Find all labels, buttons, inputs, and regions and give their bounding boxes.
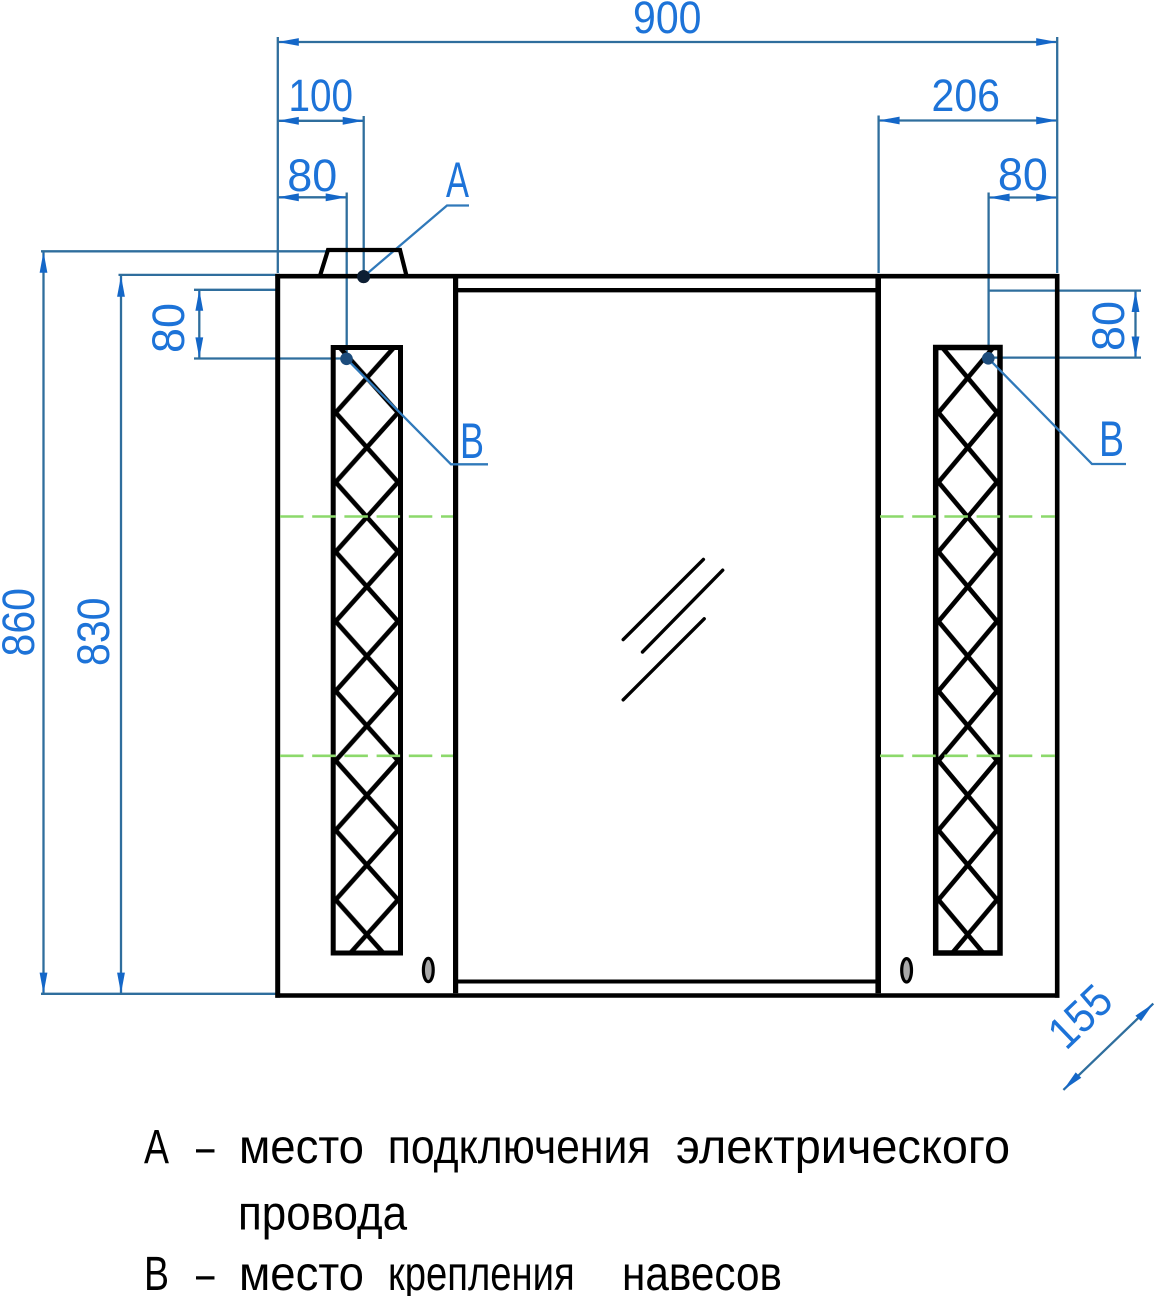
- svg-text:навесов: навесов: [622, 1248, 782, 1296]
- svg-text:80: 80: [287, 150, 337, 201]
- svg-text:В: В: [144, 1248, 169, 1296]
- svg-text:830: 830: [68, 598, 119, 667]
- svg-text:80: 80: [998, 149, 1048, 200]
- svg-text:–: –: [196, 1248, 215, 1296]
- svg-text:крепления: крепления: [388, 1248, 575, 1296]
- svg-text:В: В: [460, 413, 484, 469]
- svg-text:А: А: [144, 1121, 169, 1174]
- svg-text:900: 900: [633, 0, 702, 43]
- svg-text:A: A: [446, 152, 469, 208]
- svg-text:В: В: [1099, 411, 1124, 467]
- svg-text:860: 860: [0, 588, 44, 657]
- svg-text:80: 80: [1083, 301, 1134, 351]
- svg-text:электрического: электрического: [676, 1121, 1010, 1174]
- svg-text:206: 206: [932, 70, 1001, 121]
- svg-text:место: место: [239, 1248, 364, 1296]
- svg-text:80: 80: [143, 303, 194, 353]
- svg-text:подключения: подключения: [388, 1121, 651, 1174]
- svg-text:–: –: [196, 1121, 215, 1174]
- svg-text:100: 100: [289, 70, 354, 121]
- svg-text:место: место: [239, 1121, 364, 1174]
- svg-text:провода: провода: [238, 1187, 407, 1240]
